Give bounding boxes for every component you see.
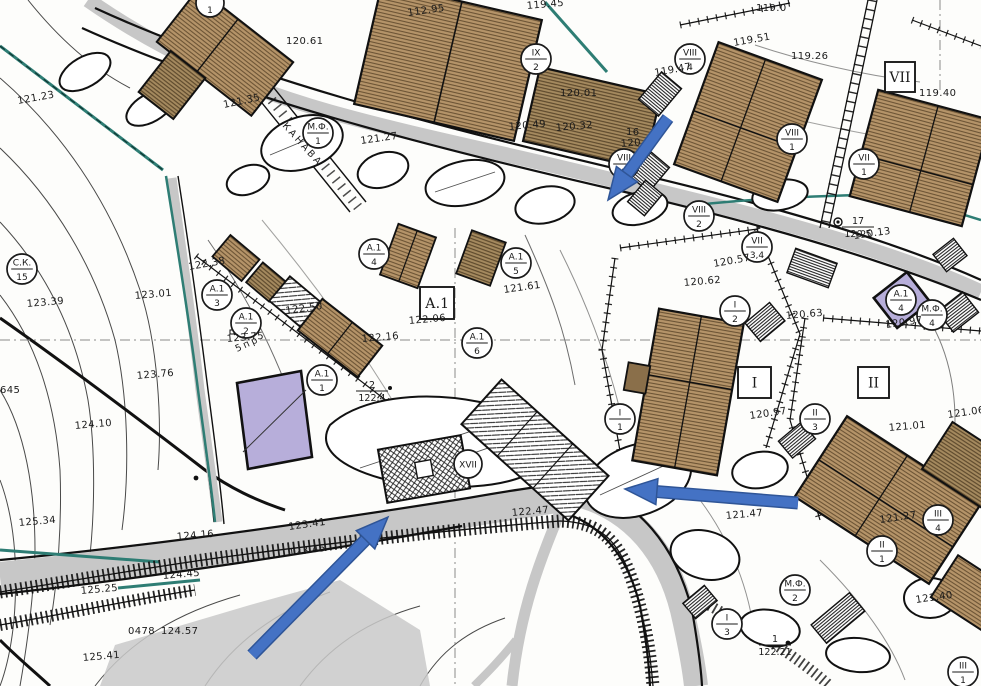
elevation-label: 125.34	[18, 515, 56, 529]
elevation-label: 120.57	[713, 253, 752, 270]
blue-annotation-arrow	[252, 517, 388, 655]
svg-text:2: 2	[696, 220, 702, 230]
svg-text:122.21: 122.21	[758, 647, 791, 658]
elevation-label: 120.62	[683, 275, 721, 289]
parcel-circle-label-I-1: I1	[605, 404, 635, 434]
elevation-label: 122.38	[188, 256, 227, 273]
svg-text:2: 2	[369, 380, 375, 391]
svg-text:4: 4	[929, 319, 935, 329]
parcel-circle-label-I-2: I2	[720, 296, 750, 326]
svg-text:II: II	[812, 409, 817, 419]
parcel-circle-label-XVII-: XVII	[454, 450, 482, 478]
elevation-label: 123.45	[288, 543, 327, 559]
svg-text:XVII: XVII	[459, 461, 477, 471]
svg-text:А.1: А.1	[894, 290, 909, 300]
parcel-circle-label-VII-1: VII1	[849, 149, 879, 179]
svg-text:А.1: А.1	[367, 244, 382, 254]
svg-text:А.1: А.1	[509, 253, 524, 263]
elevation-label: 120.32	[555, 120, 593, 134]
svg-text:А.1: А.1	[315, 370, 330, 380]
svg-text:5: 5	[513, 267, 519, 277]
parcel-circle-label-А.1-1: А.11	[307, 365, 337, 395]
elevation-label: 121.47	[725, 508, 763, 522]
svg-text:3: 3	[812, 423, 818, 433]
elevation-label: 121.27	[360, 131, 399, 147]
elevation-label: 121.35	[222, 92, 261, 111]
elevation-label: 121.40	[915, 590, 954, 606]
elevation-label: 124.57	[161, 626, 198, 637]
svg-text:I: I	[752, 376, 758, 392]
svg-text:VII: VII	[858, 154, 869, 164]
parcel-circle-label-А.1-6: А.16	[462, 328, 492, 358]
elevation-label: 123.39	[26, 296, 64, 310]
blue-annotation-arrow	[625, 479, 798, 505]
svg-text:6: 6	[474, 347, 480, 357]
elevation-label: 121.61	[503, 280, 542, 296]
svg-text:1: 1	[861, 168, 867, 178]
parcel-circle-label-С.К.-15: С.К.15	[7, 254, 37, 284]
point-fraction-label: 2122.4	[356, 380, 388, 404]
block-box-label-VII: VII	[885, 62, 915, 92]
elevation-label: 645	[0, 385, 20, 396]
elevation-label: 123.41	[288, 517, 327, 533]
block-box-label-II: II	[858, 367, 889, 398]
parcel-circle-label-IX-2: IX2	[521, 44, 551, 74]
parcel-circle-label-II-3: II3	[800, 404, 830, 434]
elevation-label: 120.63	[785, 308, 823, 322]
block-box-label-I: I	[738, 367, 771, 398]
parcel-circle-label-VIII-1: VIII1	[777, 124, 807, 154]
parcel-circle-label-А.1-4: А.14	[359, 239, 389, 269]
svg-text:VIII: VIII	[683, 49, 697, 59]
elevation-label: 120.49	[508, 119, 546, 133]
elevation-label: 112.95	[407, 3, 446, 19]
elevation-label: 119.40	[919, 88, 956, 99]
elevation-label: 119.51	[733, 32, 772, 49]
parcel-circle-label-VIII-2: VIII2	[684, 201, 714, 231]
svg-text:120.5: 120.5	[844, 229, 871, 240]
svg-text:А.1: А.1	[470, 333, 485, 343]
elevation-label: 125.25	[80, 583, 118, 597]
svg-text:VII: VII	[888, 70, 910, 86]
svg-text:I: I	[726, 614, 729, 624]
svg-text:3: 3	[214, 299, 220, 309]
parcel-circle-label-1: 1	[196, 0, 224, 17]
elevation-label: 119.45	[526, 0, 564, 12]
svg-text:1: 1	[960, 676, 966, 686]
parcel-circle-label-II-1: II1	[867, 536, 897, 566]
svg-text:2: 2	[533, 63, 539, 73]
svg-text:1: 1	[319, 384, 325, 394]
svg-text:2: 2	[732, 315, 738, 325]
map-labels-layer: М.Ф.11IX2VIII4VIII3VII3,4VIII1VII1VIII2С…	[0, 0, 981, 686]
svg-text:122.4: 122.4	[358, 393, 385, 404]
svg-text:1: 1	[879, 555, 885, 565]
elevation-label: 123.01	[134, 288, 172, 302]
elevation-label: 121.27	[879, 510, 918, 526]
svg-text:М.Ф.: М.Ф.	[921, 305, 942, 315]
svg-text:4: 4	[371, 258, 377, 268]
svg-text:II: II	[868, 376, 879, 392]
elevation-label: 124.45	[162, 568, 200, 582]
elevation-label: 124.10	[74, 418, 112, 432]
svg-text:А.1: А.1	[239, 313, 254, 323]
elevation-label: 119.26	[791, 51, 828, 62]
elevation-label: 119.47	[654, 62, 693, 79]
elevation-label: 120.01	[560, 88, 597, 99]
svg-text:А.1: А.1	[210, 285, 225, 295]
svg-text:3: 3	[724, 628, 730, 638]
svg-text:1: 1	[315, 137, 321, 147]
svg-text:4: 4	[898, 304, 904, 314]
point-fraction-label: 1122.21	[758, 634, 791, 658]
svg-text:III: III	[959, 662, 967, 672]
elevation-label: 120.61	[286, 36, 323, 47]
elevation-label: 121.01	[888, 420, 926, 434]
parcel-circle-label-А.1-3: А.13	[202, 280, 232, 310]
svg-text:2: 2	[792, 594, 798, 604]
elevation-label: 16	[626, 127, 640, 138]
svg-text:VII: VII	[751, 237, 762, 247]
elevation-label: 121.06	[947, 405, 981, 421]
svg-text:VIII: VIII	[692, 206, 706, 216]
elevation-label: 120.97	[885, 315, 924, 331]
svg-text:С.К.: С.К.	[13, 259, 31, 269]
svg-text:1: 1	[789, 143, 795, 153]
svg-text:4: 4	[935, 524, 941, 534]
parcel-circle-label-III-4: III4	[923, 505, 953, 535]
elevation-label: 120.97	[749, 406, 788, 422]
svg-text:II: II	[879, 541, 884, 551]
elevation-label: 0478	[128, 626, 155, 637]
svg-text:III: III	[934, 510, 942, 520]
svg-text:М.Ф.: М.Ф.	[784, 580, 805, 590]
svg-text:3,4: 3,4	[750, 251, 765, 261]
parcel-circle-label-А.1-5: А.15	[501, 248, 531, 278]
elevation-label: 122.16	[361, 331, 399, 345]
elevation-label: 125.41	[82, 650, 120, 664]
cadastral-map: М.Ф.11IX2VIII4VIII3VII3,4VIII1VII1VIII2С…	[0, 0, 981, 686]
elevation-label: 119.0	[756, 3, 787, 14]
elevation-label: 122.06	[408, 313, 446, 327]
svg-text:1: 1	[772, 634, 778, 645]
elevation-label: 121.23	[17, 90, 56, 107]
svg-text:М.Ф.: М.Ф.	[307, 123, 328, 133]
parcel-circle-label-III-1: III1	[948, 657, 978, 686]
elevation-label: 123.76	[136, 368, 174, 382]
svg-text:I: I	[619, 409, 622, 419]
parcel-circle-label-М.Ф.-2: М.Ф.2	[780, 575, 810, 605]
parcel-circle-label-А.1-4: А.14	[886, 285, 916, 315]
svg-text:VIII: VIII	[785, 129, 799, 139]
svg-text:15: 15	[16, 273, 27, 283]
svg-text:17: 17	[852, 216, 864, 227]
svg-text:I: I	[734, 301, 737, 311]
parcel-circle-label-I-3: I3	[712, 609, 742, 639]
svg-text:IX: IX	[532, 49, 541, 59]
svg-text:1: 1	[207, 6, 213, 16]
svg-text:А.1: А.1	[425, 296, 449, 312]
elevation-label: 124.16	[176, 529, 214, 543]
svg-text:1: 1	[617, 423, 623, 433]
elevation-label: 122.50	[285, 301, 324, 317]
elevation-label: 122.47	[511, 505, 549, 519]
